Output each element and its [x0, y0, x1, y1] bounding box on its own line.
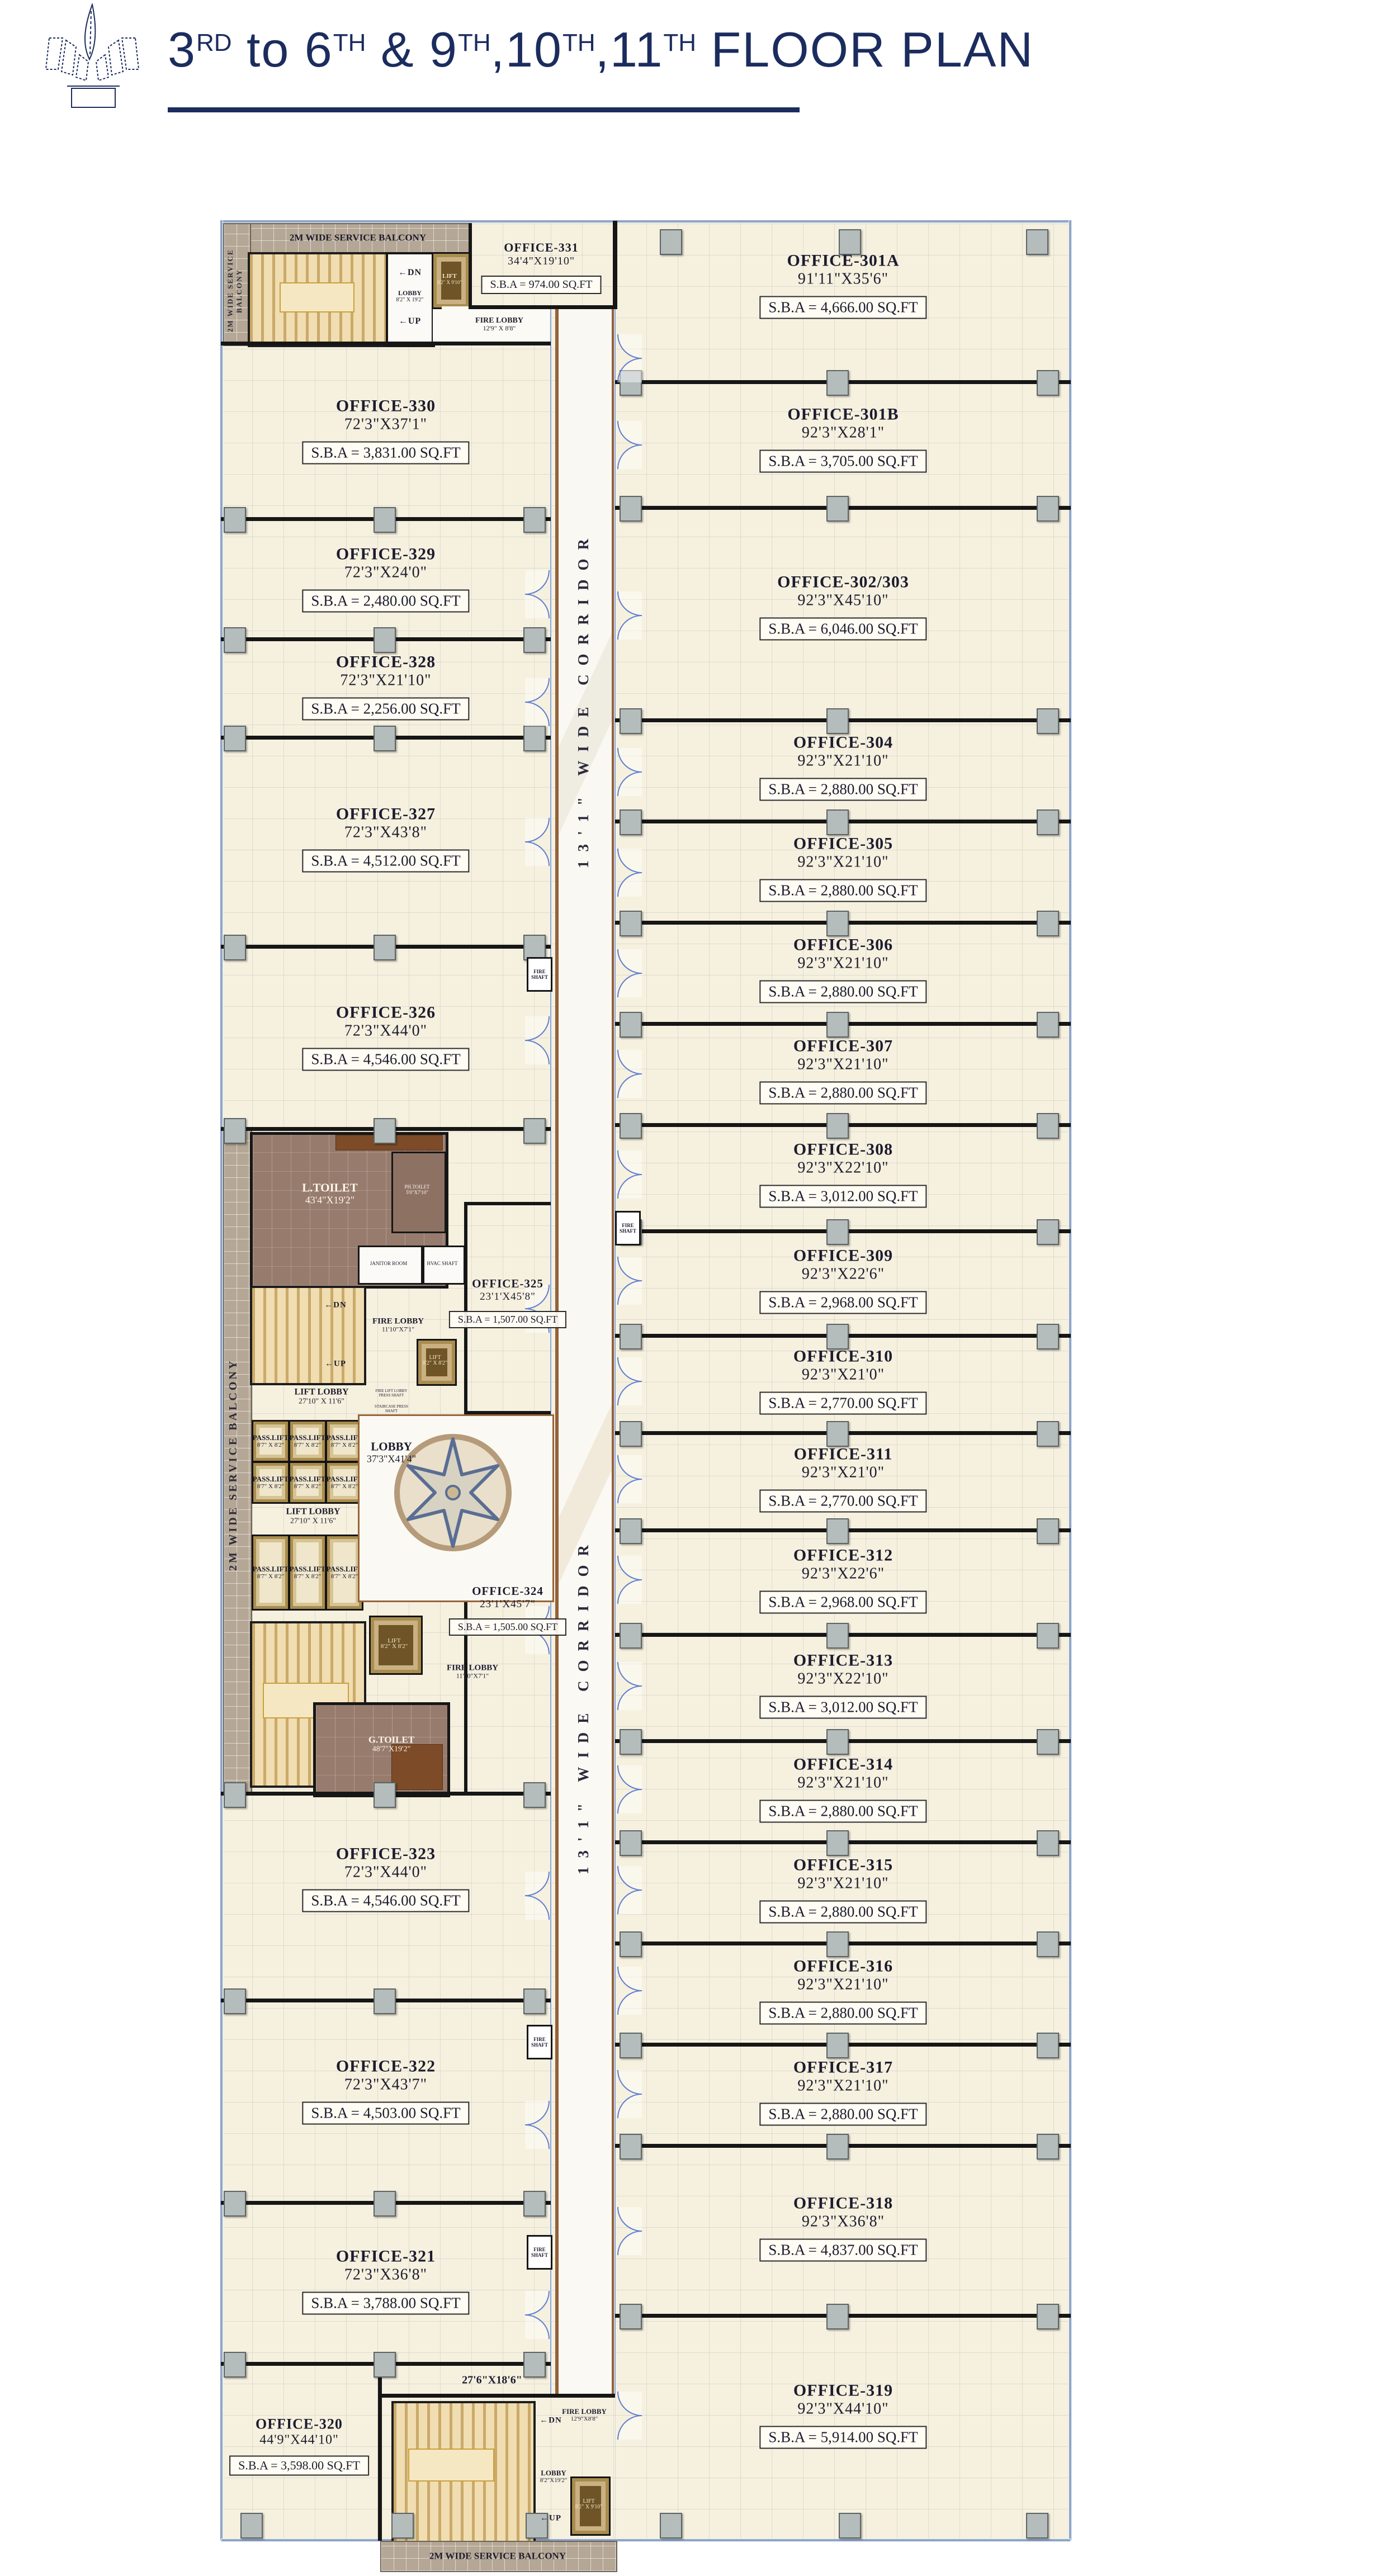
lobby-top-label: LOBBY 8'2" X 19'2" [396, 290, 424, 303]
structural-column [1037, 911, 1059, 936]
structural-column [523, 726, 546, 751]
up-label-bottom: ←UP [540, 2514, 561, 2523]
structural-column [826, 370, 849, 396]
structural-column [240, 2513, 263, 2539]
office-325-top-wall [464, 1202, 551, 1205]
office-326-label: OFFICE-32672'3"X44'0"S.B.A = 4,546.00 SQ… [302, 1003, 469, 1071]
main-lobby-label: LOBBY 37'3"X41'4" [367, 1440, 416, 1465]
structural-column [374, 627, 396, 653]
structural-column [826, 1623, 849, 1649]
office-302-303-label: OFFICE-302/30392'3"X45'10"S.B.A = 6,046.… [759, 573, 927, 641]
office-316-label: OFFICE-31692'3"X21'10"S.B.A = 2,880.00 S… [759, 1957, 927, 2025]
structural-column [1037, 2134, 1059, 2160]
service-balcony-top-label: 2M WIDE SERVICE BALCONY [290, 233, 426, 243]
structural-column [1037, 1830, 1059, 1856]
fire-lobby-bottom-label: FIRE LOBBY 12'9"X8'8" [562, 2408, 607, 2422]
office-entry-door [617, 1662, 642, 1709]
structural-column [1037, 1931, 1059, 1957]
structural-column [620, 1623, 642, 1649]
exterior-wall-right [1069, 220, 1072, 2541]
structural-column [620, 1518, 642, 1544]
structural-column [374, 2352, 396, 2378]
structural-column [374, 2191, 396, 2217]
office-322-label: OFFICE-32272'3"X43'7"S.B.A = 4,503.00 SQ… [302, 2057, 469, 2125]
fire-shaft-4: FIRE SHAFT [527, 2235, 552, 2270]
office-entry-door [617, 1050, 642, 1097]
structural-column [523, 507, 546, 533]
structural-column [660, 229, 682, 255]
structural-column [620, 1830, 642, 1856]
floor-plan: 2M WIDE SERVICE BALCONY 2M WIDE SERVICE … [0, 0, 1385, 2576]
structural-column [826, 1421, 849, 1447]
office-301b-label: OFFICE-301B92'3"X28'1"S.B.A = 3,705.00 S… [759, 405, 927, 473]
office-319-label: OFFICE-31992'3"X44'10"S.B.A = 5,914.00 S… [759, 2381, 927, 2449]
hvac-shaft-label: HVAC SHAFT [427, 1261, 457, 1266]
structural-column [826, 1219, 849, 1245]
office-entry-door [617, 2392, 642, 2438]
corridor-junction-dim: 27'6"X18'6" [462, 2375, 522, 2386]
passenger-lift: PASS.LIFT8'7" X 8'2" [252, 1461, 290, 1504]
ph-toilet-label: PH.TOILET5'0"X7'10" [404, 1184, 429, 1195]
structural-column [523, 2352, 546, 2378]
structural-column [374, 935, 396, 960]
corridor-label-upper: 13'1" WIDE CORRIDOR [575, 486, 592, 911]
office-307-label: OFFICE-30792'3"X21'10"S.B.A = 2,880.00 S… [759, 1037, 927, 1105]
office-entry-door [525, 678, 550, 725]
fire-lobby-mid-lower-label: FIRE LOBBY 11'10"X7'1" [447, 1664, 498, 1680]
office-entry-door [617, 1150, 642, 1197]
structural-column [826, 1113, 849, 1139]
up-label-mid: ←UP [325, 1360, 346, 1369]
office-entry-door [525, 818, 550, 865]
office-317-label: OFFICE-31792'3"X21'10"S.B.A = 2,880.00 S… [759, 2058, 927, 2126]
lift-mid-upper-label: LIFT8'2" X 8'2" [423, 1355, 447, 1366]
fire-lobby-mid-upper-label: FIRE LOBBY 11'10"X7'1" [372, 1317, 424, 1333]
structural-column [620, 1012, 642, 1038]
structural-column [1037, 370, 1059, 396]
structural-column [523, 1988, 546, 2014]
office-315-label: OFFICE-31592'3"X21'10"S.B.A = 2,880.00 S… [759, 1856, 927, 1924]
office-305-label: OFFICE-30592'3"X21'10"S.B.A = 2,880.00 S… [759, 835, 927, 902]
structural-column [620, 2033, 642, 2058]
dn-label-top: ←DN [398, 268, 422, 278]
structural-column [224, 627, 246, 653]
office-311-label: OFFICE-31192'3"X21'0"S.B.A = 2,770.00 SQ… [759, 1445, 927, 1513]
structural-column [660, 2513, 682, 2539]
structural-column [1037, 1421, 1059, 1447]
structural-column [1037, 1518, 1059, 1544]
structural-column [1037, 1729, 1059, 1755]
structural-column [826, 2134, 849, 2160]
office-324-label: OFFICE-324 23'1'X45'7" S.B.A = 1,505.00 … [449, 1584, 566, 1636]
structural-column [620, 1324, 642, 1349]
core-top-right-wall [469, 223, 472, 307]
structural-column [1026, 229, 1048, 255]
structural-column [620, 1931, 642, 1957]
structural-column [620, 1421, 642, 1447]
structural-column [620, 2304, 642, 2329]
service-balcony-mid-label: 2M WIDE SERVICE BALCONY [227, 1286, 240, 1644]
office-320-right-wall [378, 2364, 382, 2541]
office-310-label: OFFICE-31092'3"X21'0"S.B.A = 2,770.00 SQ… [759, 1347, 927, 1415]
passenger-lift: PASS.LIFT8'7" X 8'2" [289, 1420, 327, 1462]
structural-column [224, 1782, 246, 1808]
office-entry-door [617, 1357, 642, 1404]
janitor-room-label: JANITOR ROOM [370, 1261, 408, 1266]
gents-toilet-label: G.TOILET 48'7"X19'2" [368, 1735, 414, 1754]
passenger-lift: PASS.LIFT8'7" X 8'2" [289, 1535, 327, 1611]
structural-column [1037, 708, 1059, 734]
structural-column [620, 1729, 642, 1755]
office-entry-door [617, 421, 642, 468]
corridor-left-wall [550, 306, 552, 2395]
office-331-label: OFFICE-331 34'4"X19'10" S.B.A = 974.00 S… [481, 240, 602, 294]
structural-column [839, 2513, 861, 2539]
office-323-label: OFFICE-32372'3"X44'0"S.B.A = 4,546.00 SQ… [302, 1845, 469, 1912]
structural-column [1037, 809, 1059, 835]
structural-column [826, 1012, 849, 1038]
lift-top-label: LIFT 8'2" X 9'10" [437, 273, 462, 285]
lift-bottom-label: LIFT8'2" X 9'10" [575, 2499, 603, 2510]
structural-column [826, 1931, 849, 1957]
fire-shaft-2: FIRE SHAFT [615, 1211, 641, 1246]
structural-column [224, 2352, 246, 2378]
dn-label-mid: ←DN [324, 1301, 347, 1310]
dn-label-bottom: ←DN [540, 2416, 562, 2426]
office-entry-door [617, 334, 642, 381]
office-312-label: OFFICE-31292'3"X22'6"S.B.A = 2,968.00 SQ… [759, 1546, 927, 1614]
office-327-label: OFFICE-32772'3"X43'8"S.B.A = 4,512.00 SQ… [302, 805, 469, 873]
lift-mid-lower-label: LIFT8'2" X 8'2" [381, 1638, 408, 1649]
fire-shaft-1: FIRE SHAFT [527, 957, 552, 992]
office-entry-door [617, 1257, 642, 1304]
exterior-wall-bottom [221, 2539, 1071, 2542]
stairs-bottom-landing [408, 2449, 494, 2482]
office-entry-door [617, 2070, 642, 2117]
structural-column [523, 1782, 546, 1808]
structural-column [826, 2304, 849, 2329]
office-309-label: OFFICE-30992'3"X22'6"S.B.A = 2,968.00 SQ… [759, 1247, 927, 1314]
structural-column [224, 1988, 246, 2014]
office-entry-door [617, 1866, 642, 1913]
office-entry-door [617, 1967, 642, 2014]
structural-column [826, 1830, 849, 1856]
office-entry-door [525, 2291, 550, 2338]
up-label-top: ←UP [399, 316, 421, 326]
office-330-label: OFFICE-33072'3"X37'1"S.B.A = 3,831.00 SQ… [302, 397, 469, 465]
structural-column [224, 935, 246, 960]
structural-column [523, 1118, 546, 1144]
structural-column [1037, 1012, 1059, 1038]
stairs-mid-upper [250, 1286, 366, 1385]
structural-column [620, 809, 642, 835]
corridor-right-wall [614, 221, 616, 2395]
office-321-label: OFFICE-32172'3"X36'8"S.B.A = 3,788.00 SQ… [302, 2247, 469, 2315]
structural-column [826, 2033, 849, 2058]
staircase-shaft-label: STAIRCASE PRESS SHAFT [372, 1404, 411, 1413]
passenger-lift: PASS.LIFT8'7" X 8'2" [252, 1420, 290, 1462]
structural-column [374, 1782, 396, 1808]
office-entry-door [525, 1016, 550, 1063]
structural-column [826, 911, 849, 936]
office-331-right-wall [613, 221, 617, 309]
structural-column [1037, 2033, 1059, 2058]
office-308-label: OFFICE-30892'3"X22'10"S.B.A = 3,012.00 S… [759, 1140, 927, 1208]
core-top-bottom-wall [221, 342, 551, 345]
office-entry-door [525, 1872, 550, 1919]
structural-column [1037, 1219, 1059, 1245]
structural-column [374, 507, 396, 533]
structural-column [620, 911, 642, 936]
lobby-bottom-label: LOBBY 8'2"X19'2" [540, 2469, 567, 2484]
structural-column [826, 1729, 849, 1755]
structural-column [523, 2191, 546, 2217]
office-entry-door [617, 1455, 642, 1502]
structural-column [1037, 1324, 1059, 1349]
office-301a-label: OFFICE-301A91'11"X35'6"S.B.A = 4,666.00 … [759, 252, 927, 319]
office-313-label: OFFICE-31392'3"X22'10"S.B.A = 3,012.00 S… [759, 1651, 927, 1719]
office-328-label: OFFICE-32872'3"X21'10"S.B.A = 2,256.00 S… [302, 653, 469, 721]
structural-column [224, 507, 246, 533]
structural-column [374, 726, 396, 751]
office-314-label: OFFICE-31492'3"X21'10"S.B.A = 2,880.00 S… [759, 1755, 927, 1823]
structural-column [620, 708, 642, 734]
fire-shaft-3: FIRE SHAFT [527, 2025, 552, 2059]
lift-lobby-upper-label: LIFT LOBBY 27'10" X 11'6" [294, 1388, 348, 1406]
structural-column [1026, 2513, 1048, 2539]
office-entry-door [617, 849, 642, 896]
office-entry-door [617, 1556, 642, 1603]
structural-column [620, 2134, 642, 2160]
office-entry-door [617, 2207, 642, 2254]
corridor-label-lower: 13'1" WIDE CORRIDOR [575, 1493, 592, 1917]
office-entry-door [617, 748, 642, 795]
service-balcony-bottom-label: 2M WIDE SERVICE BALCONY [429, 2551, 566, 2561]
passenger-lift: PASS.LIFT8'7" X 8'2" [252, 1535, 290, 1611]
office-306-label: OFFICE-30692'3"X21'10"S.B.A = 2,880.00 S… [759, 936, 927, 1003]
fire-lift-shaft-label: FIRE LIFT LOBBY PRESS SHAFT [372, 1389, 411, 1398]
office-320-label: OFFICE-320 44'9"X44'10" S.B.A = 3,598.00… [229, 2416, 369, 2476]
fire-lobby-top-label: FIRE LOBBY 12'9" X 8'8" [475, 316, 523, 332]
structural-column [1037, 1113, 1059, 1139]
office-304-label: OFFICE-30492'3"X21'10"S.B.A = 2,880.00 S… [759, 733, 927, 801]
structural-column [1037, 2304, 1059, 2329]
lift-lobby-lower-label: LIFT LOBBY 27'10" X 11'6" [286, 1507, 340, 1526]
structural-column [826, 1518, 849, 1544]
office-entry-door [525, 2101, 550, 2148]
floor-plan-page: 3RD to 6TH & 9TH,10TH,11TH FLOOR PLAN 2M… [0, 0, 1385, 2576]
structural-column [224, 2191, 246, 2217]
structural-column [826, 809, 849, 835]
structural-column [620, 1113, 642, 1139]
structural-column [391, 2513, 414, 2539]
office-331-bottom-wall [469, 305, 617, 309]
service-balcony-topleft-label: 2M WIDE SERVICE BALCONY [226, 240, 244, 341]
passenger-lift: PASS.LIFT8'7" X 8'2" [289, 1461, 327, 1504]
office-325-label: OFFICE-325 23'1'X45'8" S.B.A = 1,507.00 … [449, 1277, 566, 1328]
ladies-toilet-label: L.TOILET 43'4"X19'2" [302, 1181, 357, 1206]
structural-column [620, 496, 642, 522]
structural-column [523, 627, 546, 653]
structural-column [1037, 496, 1059, 522]
office-entry-door [617, 1765, 642, 1812]
bottom-core-top-wall [378, 2394, 615, 2398]
structural-column [224, 726, 246, 751]
office-entry-door [617, 949, 642, 996]
office-318-label: OFFICE-31892'3"X36'8"S.B.A = 4,837.00 SQ… [759, 2194, 927, 2262]
structural-column [224, 1118, 246, 1144]
structural-column [374, 1118, 396, 1144]
structural-column [826, 1324, 849, 1349]
structural-column [1037, 1623, 1059, 1649]
office-entry-door [617, 591, 642, 638]
structural-column [374, 1988, 396, 2014]
office-329-label: OFFICE-32972'3"X24'0"S.B.A = 2,480.00 SQ… [302, 545, 469, 613]
stairs-top-landing [280, 282, 354, 312]
office-entry-door [525, 570, 550, 617]
structural-column [826, 496, 849, 522]
structural-column [826, 708, 849, 734]
